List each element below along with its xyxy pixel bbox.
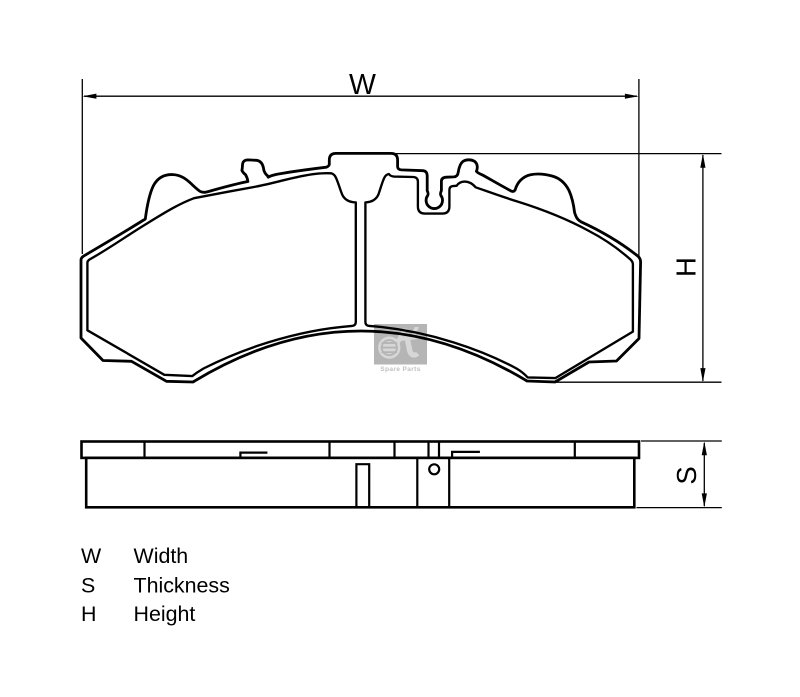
svg-text:H: H bbox=[671, 257, 702, 277]
svg-text:Spare Parts: Spare Parts bbox=[380, 366, 421, 373]
svg-text:Width: Width bbox=[134, 544, 189, 568]
svg-text:S: S bbox=[671, 466, 702, 484]
svg-text:H: H bbox=[81, 602, 96, 626]
svg-text:W: W bbox=[81, 544, 102, 568]
svg-text:S: S bbox=[81, 573, 95, 597]
svg-text:Thickness: Thickness bbox=[134, 573, 230, 597]
svg-text:W: W bbox=[349, 69, 376, 101]
svg-text:Height: Height bbox=[134, 602, 196, 626]
